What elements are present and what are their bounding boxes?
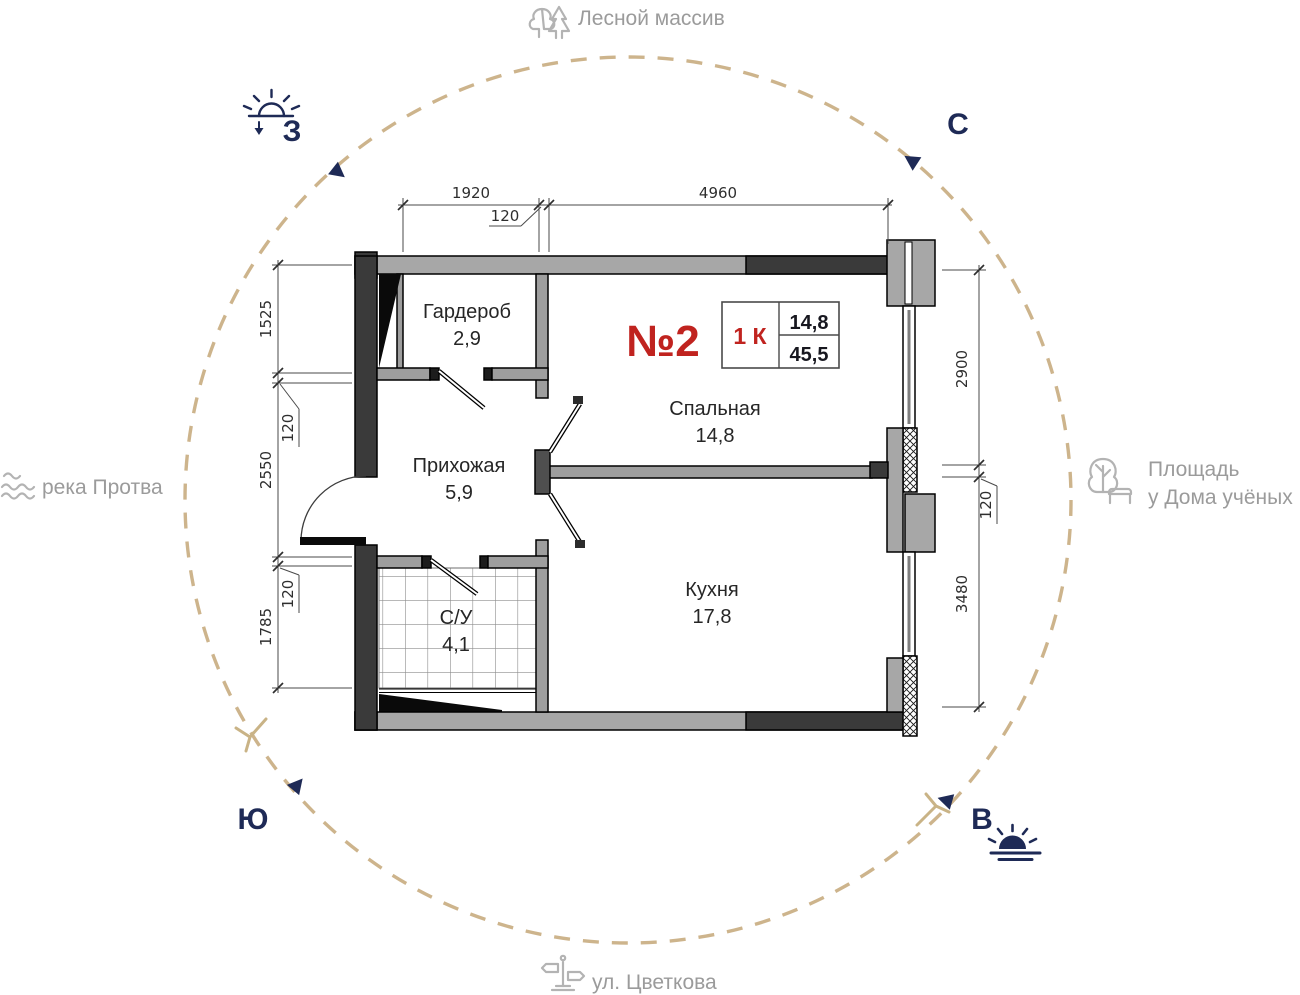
trees-icon [530,7,569,38]
kitchen-door-jamb [575,540,585,548]
dim-top-1920: 1920 [452,184,490,202]
entrance-door-leaf [300,537,366,545]
apartment-number: №2 [626,317,700,366]
square-label-group: Площадь у Дома учёных [1089,458,1293,509]
compass-east-label: В [971,803,993,836]
dim-top-4960: 4960 [699,184,737,202]
hatched-pier-bottom [903,656,917,736]
dimension-left: 1525 120 2550 120 1785 [257,260,352,693]
dim-left-2550: 2550 [257,451,275,489]
room-name-kitchen: Кухня [685,579,739,601]
room-area-wardrobe: 2,9 [453,328,481,350]
wall-bedroom-kitchen [548,466,872,478]
entrance-door-arc [301,476,366,541]
room-area-bathroom: 4,1 [442,634,470,656]
dim-left-120b: 120 [279,580,297,609]
river-label: река Протва [42,476,163,499]
dim-left-120a: 120 [279,414,297,443]
wall-bedroom-kitchen-dark-end [870,462,888,478]
room-name-hall: Прихожая [413,455,506,477]
duct-wedge-bottom [379,694,502,712]
square-label-line1: Площадь [1148,458,1239,481]
wall-hall-junction [535,450,550,494]
wardrobe-door-jamb-right [484,368,492,380]
dim-right-120: 120 [977,491,995,520]
twig-decoration-southwest [236,719,266,751]
site-boundary-circle [185,57,1071,943]
room-area-hall: 5,9 [445,482,473,504]
wall-wardrobe-left [397,274,403,370]
room-area-bedroom: 14,8 [696,425,735,447]
wall-wardrobe-bottom-right [492,368,548,380]
signpost-icon [542,956,584,990]
compass-north-label: С [947,108,969,141]
dim-left-1525: 1525 [257,300,275,338]
wall-bathroom-top-right [488,556,548,568]
dim-top-120: 120 [491,207,520,225]
compass-arrow-southwest-icon [287,773,309,795]
wall-left-lower [355,545,377,730]
square-label-line2: у Дома учёных [1148,486,1293,509]
room-name-bedroom: Спальная [669,398,760,420]
kitchen-door-leaf-inner [550,494,580,542]
street-label-group: ул. Цветкова [542,956,717,994]
hatched-pier-middle [903,428,917,492]
sunrise-icon [989,825,1040,860]
pier-middle-outer [905,494,935,552]
apartment-living-area: 14,8 [790,312,829,334]
waves-icon [2,474,34,499]
forest-label: Лесной массив [578,7,725,30]
dimension-top: 1920 120 4960 [398,184,893,252]
wall-left-upper [355,256,377,477]
pier-bottom-inner [887,658,903,712]
apartment-total-area: 45,5 [790,344,829,366]
room-name-bathroom: С/У [440,607,473,629]
bathroom-door-jamb-right [480,556,488,568]
bathroom-door-jamb-left [422,556,431,568]
wall-top-dark-segment [746,256,905,274]
compass-west-label: З [283,115,302,148]
compass-arrow-northwest-icon [328,162,350,184]
street-label: ул. Цветкова [592,971,717,994]
wall-bottom-dark-segment [746,712,905,730]
dim-right-3480: 3480 [953,575,971,613]
forest-label-group: Лесной массив [530,7,725,38]
tree-bench-icon [1089,459,1131,503]
bathroom-sill-lines [379,689,536,693]
wall-bathroom-top-left [377,556,422,568]
pier-top-right-joint [905,242,912,304]
dim-right-2900: 2900 [953,350,971,388]
room-name-wardrobe: Гардероб [423,301,511,323]
river-label-group: река Протва [2,474,163,500]
dim-left-1785: 1785 [257,608,275,646]
floor-plan-page: С З Ю В Лесной массив [0,0,1300,995]
apartment-type: 1 К [733,323,767,349]
bedroom-door-jamb [573,396,583,404]
compass-south-label: Ю [238,803,269,836]
apartment-info-table: 1 К 14,8 45,5 [722,302,839,368]
bedroom-door-leaf-inner [550,404,580,452]
wall-wardrobe-bottom-left [377,368,430,380]
pier-middle-inner [887,428,903,552]
dimension-right: 2900 120 3480 [942,265,997,712]
site-plan-svg: С З Ю В Лесной массив [0,0,1300,995]
wardrobe-door-leaf-inner [439,371,484,408]
room-area-kitchen: 17,8 [693,606,732,628]
wardrobe-door-jamb-left [430,368,439,380]
